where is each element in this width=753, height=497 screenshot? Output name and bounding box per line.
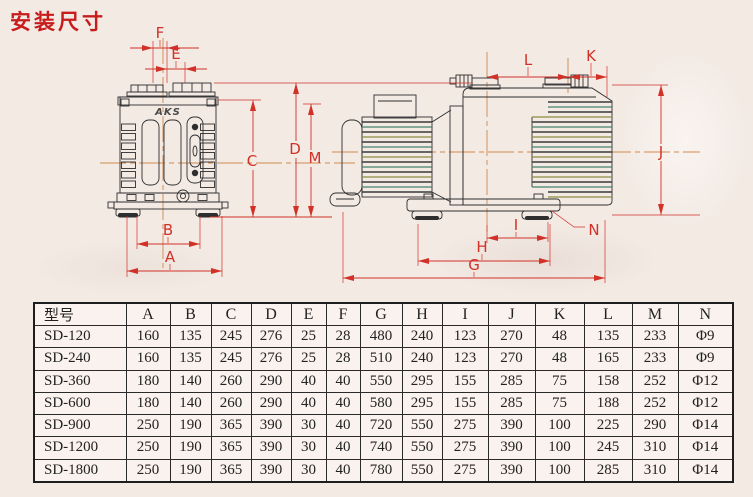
value-cell: 158 bbox=[584, 370, 632, 392]
value-cell: 40 bbox=[326, 437, 360, 459]
motor-flange bbox=[450, 106, 463, 205]
value-cell: 40 bbox=[291, 370, 326, 392]
value-cell: 233 bbox=[632, 348, 678, 370]
col-header-H: H bbox=[402, 303, 442, 326]
col-header-K: K bbox=[535, 303, 584, 326]
value-cell: 28 bbox=[326, 326, 360, 348]
value-cell: 390 bbox=[488, 459, 535, 482]
value-cell: 40 bbox=[326, 370, 360, 392]
front-view-drawing: AKS bbox=[108, 83, 228, 218]
value-cell: 295 bbox=[402, 370, 442, 392]
col-header-N: N bbox=[678, 303, 733, 326]
value-cell: 240 bbox=[402, 326, 442, 348]
value-cell: 295 bbox=[402, 392, 442, 414]
dimension-N: N bbox=[552, 211, 600, 239]
table-row: SD-9002501903653903040720550275390100225… bbox=[34, 415, 733, 437]
value-cell: 550 bbox=[402, 437, 442, 459]
dim-label-F: F bbox=[156, 24, 165, 42]
inlet-port bbox=[127, 85, 167, 96]
pump-base-side bbox=[407, 194, 560, 220]
value-cell: 240 bbox=[402, 348, 442, 370]
value-cell: 250 bbox=[126, 437, 170, 459]
value-cell: 276 bbox=[251, 326, 291, 348]
value-cell: 780 bbox=[360, 459, 402, 482]
value-cell: 40 bbox=[326, 459, 360, 482]
brand-logo: AKS bbox=[154, 107, 181, 118]
value-cell: 155 bbox=[442, 370, 488, 392]
pump-body-front: AKS bbox=[118, 97, 218, 193]
value-cell: 155 bbox=[442, 392, 488, 414]
dimension-B: B bbox=[137, 216, 200, 249]
value-cell: 48 bbox=[535, 348, 584, 370]
value-cell: 40 bbox=[326, 392, 360, 414]
value-cell: 245 bbox=[211, 326, 251, 348]
dim-label-D: D bbox=[289, 140, 301, 158]
value-cell: Φ14 bbox=[678, 459, 733, 482]
value-cell: 580 bbox=[360, 392, 402, 414]
table-row: SD-1201601352452762528480240123270481352… bbox=[34, 326, 733, 348]
value-cell: Φ12 bbox=[678, 392, 733, 414]
value-cell: 285 bbox=[488, 370, 535, 392]
value-cell: 285 bbox=[584, 459, 632, 482]
value-cell: 480 bbox=[360, 326, 402, 348]
value-cell: 135 bbox=[170, 348, 211, 370]
outlet-port bbox=[169, 83, 215, 96]
dim-label-I: I bbox=[514, 216, 518, 234]
value-cell: 550 bbox=[402, 459, 442, 482]
drain-plug bbox=[177, 190, 189, 202]
dimension-J: J bbox=[612, 85, 700, 215]
value-cell: 310 bbox=[632, 459, 678, 482]
dimension-F: F bbox=[130, 24, 199, 83]
value-cell: 245 bbox=[584, 437, 632, 459]
value-cell: 270 bbox=[488, 326, 535, 348]
value-cell: 75 bbox=[535, 392, 584, 414]
value-cell: 165 bbox=[584, 348, 632, 370]
terminal-box bbox=[374, 95, 416, 118]
value-cell: 740 bbox=[360, 437, 402, 459]
value-cell: 140 bbox=[170, 392, 211, 414]
value-cell: 100 bbox=[535, 437, 584, 459]
value-cell: 75 bbox=[535, 370, 584, 392]
value-cell: 365 bbox=[211, 437, 251, 459]
value-cell: 365 bbox=[211, 415, 251, 437]
value-cell: 275 bbox=[442, 437, 488, 459]
pump-body-side bbox=[450, 75, 612, 205]
table-row: SD-2401601352452762528510240123270481652… bbox=[34, 348, 733, 370]
value-cell: 260 bbox=[211, 370, 251, 392]
dimension-table: 型号 ABCDEFGHIJKLMN SD-1201601352452762528… bbox=[33, 302, 734, 483]
dimension-A: A bbox=[127, 216, 222, 277]
col-header-L: L bbox=[584, 303, 632, 326]
dim-label-L: L bbox=[524, 51, 533, 69]
value-cell: 225 bbox=[584, 415, 632, 437]
dimension-C: C bbox=[218, 100, 261, 217]
model-cell: SD-1800 bbox=[34, 459, 126, 482]
value-cell: 123 bbox=[442, 326, 488, 348]
value-cell: Φ14 bbox=[678, 437, 733, 459]
col-header-G: G bbox=[360, 303, 402, 326]
value-cell: 40 bbox=[291, 392, 326, 414]
col-header-M: M bbox=[632, 303, 678, 326]
value-cell: 30 bbox=[291, 437, 326, 459]
value-cell: 270 bbox=[488, 348, 535, 370]
value-cell: Φ14 bbox=[678, 415, 733, 437]
value-cell: 190 bbox=[170, 459, 211, 482]
dimension-M: M bbox=[303, 104, 321, 217]
dimension-E: E bbox=[145, 45, 207, 83]
col-header-F: F bbox=[326, 303, 360, 326]
value-cell: 252 bbox=[632, 370, 678, 392]
value-cell: 123 bbox=[442, 348, 488, 370]
dimension-K: K bbox=[569, 47, 607, 97]
value-cell: 720 bbox=[360, 415, 402, 437]
value-cell: 390 bbox=[251, 459, 291, 482]
value-cell: 276 bbox=[251, 348, 291, 370]
value-cell: Φ12 bbox=[678, 370, 733, 392]
value-cell: 135 bbox=[584, 326, 632, 348]
value-cell: 30 bbox=[291, 459, 326, 482]
front-slot bbox=[142, 120, 159, 185]
value-cell: 275 bbox=[442, 415, 488, 437]
col-header-I: I bbox=[442, 303, 488, 326]
dim-label-C: C bbox=[247, 152, 257, 170]
dimension-I: I bbox=[487, 216, 548, 243]
value-cell: 180 bbox=[126, 392, 170, 414]
col-header-A: A bbox=[126, 303, 170, 326]
value-cell: 190 bbox=[170, 437, 211, 459]
value-cell: 310 bbox=[632, 437, 678, 459]
value-cell: Φ9 bbox=[678, 326, 733, 348]
dim-label-J: J bbox=[658, 143, 663, 161]
side-view-drawing bbox=[330, 75, 612, 220]
value-cell: 252 bbox=[632, 392, 678, 414]
dim-label-H: H bbox=[476, 238, 487, 256]
table-row: SD-6001801402602904040580295155285751882… bbox=[34, 392, 733, 414]
col-header-C: C bbox=[211, 303, 251, 326]
model-cell: SD-120 bbox=[34, 326, 126, 348]
value-cell: 48 bbox=[535, 326, 584, 348]
dimension-H: H bbox=[418, 224, 550, 266]
model-cell: SD-900 bbox=[34, 415, 126, 437]
value-cell: 160 bbox=[126, 326, 170, 348]
dimension-L: L bbox=[487, 51, 569, 80]
value-cell: 28 bbox=[326, 348, 360, 370]
table-row: SD-1200250190365390304074055027539010024… bbox=[34, 437, 733, 459]
dim-label-G: G bbox=[468, 256, 480, 274]
value-cell: Φ9 bbox=[678, 348, 733, 370]
value-cell: 275 bbox=[442, 459, 488, 482]
dim-label-E: E bbox=[171, 45, 180, 63]
value-cell: 390 bbox=[488, 415, 535, 437]
value-cell: 260 bbox=[211, 392, 251, 414]
value-cell: 25 bbox=[291, 348, 326, 370]
model-cell: SD-1200 bbox=[34, 437, 126, 459]
pump-base-front bbox=[108, 190, 228, 218]
dim-label-K: K bbox=[586, 47, 597, 65]
dim-label-A: A bbox=[165, 248, 176, 266]
value-cell: 510 bbox=[360, 348, 402, 370]
dimension-G: G bbox=[343, 212, 605, 283]
col-header-E: E bbox=[291, 303, 326, 326]
value-cell: 25 bbox=[291, 326, 326, 348]
motor-fins bbox=[362, 122, 432, 192]
value-cell: 365 bbox=[211, 459, 251, 482]
value-cell: 290 bbox=[251, 370, 291, 392]
dim-label-B: B bbox=[163, 221, 173, 239]
value-cell: 30 bbox=[291, 415, 326, 437]
table-header-row: 型号 ABCDEFGHIJKLMN bbox=[34, 303, 733, 326]
value-cell: 100 bbox=[535, 415, 584, 437]
value-cell: 233 bbox=[632, 326, 678, 348]
value-cell: 250 bbox=[126, 459, 170, 482]
value-cell: 290 bbox=[632, 415, 678, 437]
value-cell: 135 bbox=[170, 326, 211, 348]
dim-label-M: M bbox=[309, 149, 322, 167]
scanned-page: 安装尺寸 bbox=[0, 0, 753, 497]
col-header-J: J bbox=[488, 303, 535, 326]
model-cell: SD-240 bbox=[34, 348, 126, 370]
value-cell: 140 bbox=[170, 370, 211, 392]
value-cell: 285 bbox=[488, 392, 535, 414]
value-cell: 40 bbox=[326, 415, 360, 437]
front-slot bbox=[164, 120, 181, 185]
value-cell: 180 bbox=[126, 370, 170, 392]
table-row: SD-3601801402602904040550295155285751582… bbox=[34, 370, 733, 392]
value-cell: 245 bbox=[211, 348, 251, 370]
model-cell: SD-360 bbox=[34, 370, 126, 392]
col-header-model: 型号 bbox=[34, 303, 126, 326]
motor bbox=[330, 95, 463, 206]
pump-fins-side bbox=[532, 102, 612, 197]
model-cell: SD-600 bbox=[34, 392, 126, 414]
value-cell: 390 bbox=[488, 437, 535, 459]
col-header-B: B bbox=[170, 303, 211, 326]
cooling-fins-left bbox=[122, 124, 136, 188]
value-cell: 250 bbox=[126, 415, 170, 437]
value-cell: 100 bbox=[535, 459, 584, 482]
dim-label-N: N bbox=[588, 221, 599, 239]
value-cell: 550 bbox=[360, 370, 402, 392]
installation-drawing: AKS bbox=[0, 0, 753, 300]
value-cell: 390 bbox=[251, 437, 291, 459]
value-cell: 188 bbox=[584, 392, 632, 414]
value-cell: 190 bbox=[170, 415, 211, 437]
value-cell: 290 bbox=[251, 392, 291, 414]
value-cell: 390 bbox=[251, 415, 291, 437]
value-cell: 550 bbox=[402, 415, 442, 437]
col-header-D: D bbox=[251, 303, 291, 326]
value-cell: 160 bbox=[126, 348, 170, 370]
table-row: SD-1800250190365390304078055027539010028… bbox=[34, 459, 733, 482]
